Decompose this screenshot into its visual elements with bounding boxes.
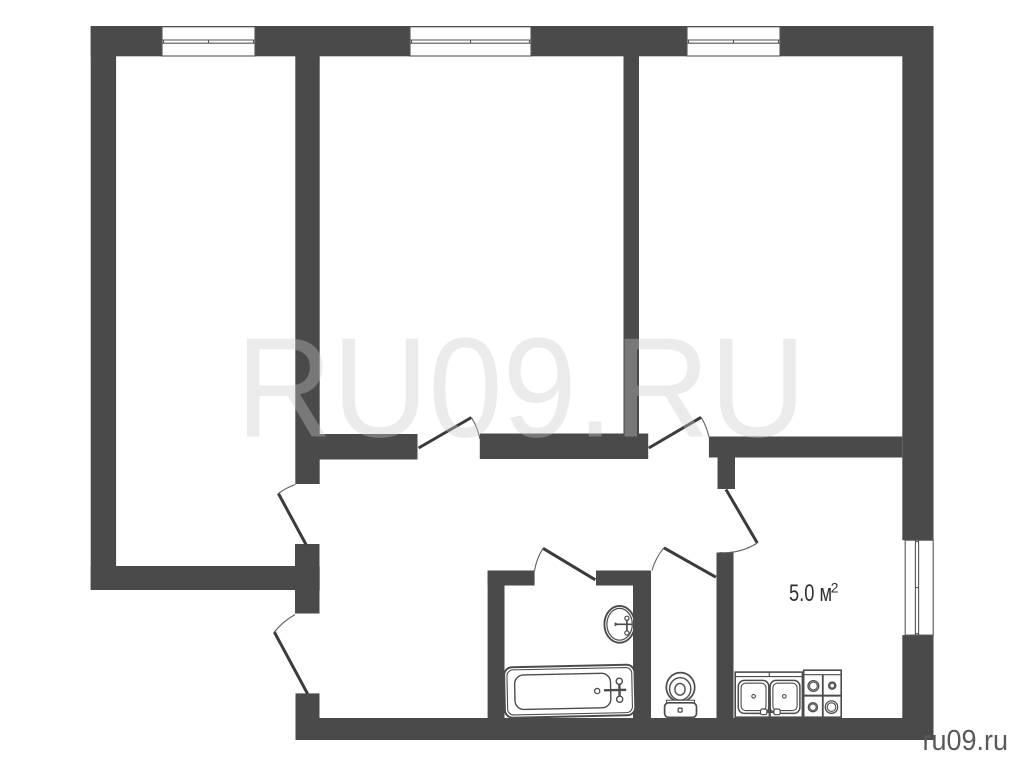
svg-text:5.0 м: 5.0 м (789, 580, 832, 607)
svg-text:RU09.RU: RU09.RU (236, 309, 806, 468)
svg-text:2: 2 (831, 581, 839, 596)
svg-text:ru09.ru: ru09.ru (923, 725, 1009, 757)
